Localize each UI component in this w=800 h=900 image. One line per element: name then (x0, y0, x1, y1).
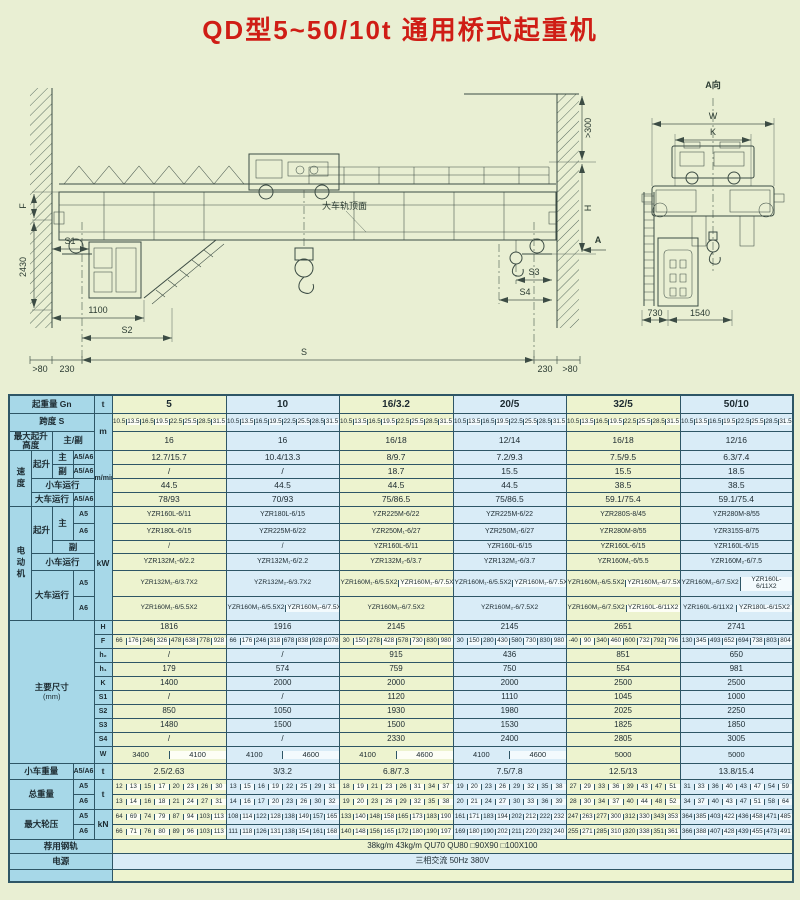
label-main: 主 (52, 451, 73, 465)
sub-value: 29 (396, 799, 410, 806)
label-a6: A6 (73, 597, 94, 621)
dim-values: 41004600 (339, 747, 453, 764)
sub-value: -40 (567, 638, 580, 645)
sub-value: 23 (367, 799, 381, 806)
sub-value: 5000 (681, 751, 793, 759)
value-cell: 18.5 (680, 465, 793, 479)
span-values: 10.513.516.519.522.525.528.531.5 (453, 413, 566, 431)
value-cell: 15.5 (566, 465, 680, 479)
sub-value: 31.5 (324, 419, 338, 426)
value-cell: 1480 (112, 719, 226, 733)
sub-value: 22 (282, 784, 296, 791)
dim-letter: S1 (94, 691, 112, 705)
sub-value: 66 (113, 638, 126, 645)
value-cell: / (112, 691, 226, 705)
sub-value: 90 (580, 638, 594, 645)
sub-value: 133 (340, 814, 353, 821)
motor-cell: YZR160M₂-6/7.5X2 (453, 597, 566, 621)
dim-values: 5000 (680, 747, 793, 764)
dims-unit: (mm) (10, 693, 94, 701)
row-lift-height: 最大起升高度 主/副 16 16 16/18 12/14 16/18 12/16 (9, 431, 793, 451)
value-cell: 78/93 (112, 493, 226, 507)
sub-value: YZR160M₁-6/5.5X2 (340, 580, 399, 587)
value-cell: 6.8/7.3 (339, 764, 453, 780)
a-view-title: A向 (705, 79, 721, 90)
sub-value: 40 (623, 799, 637, 806)
value-cell: 1916 (226, 621, 339, 635)
sub-value: 28.5 (651, 419, 665, 426)
sub-value: 491 (778, 829, 792, 836)
view-arrow-label: A (595, 235, 602, 245)
sub-value: 25.5 (750, 419, 764, 426)
dim-values: 66176246326478638778928 (112, 635, 226, 649)
dim-values: 34004100 (112, 747, 226, 764)
sub-value: 19.5 (381, 419, 395, 426)
sub-value: 285 (594, 829, 608, 836)
sub-value: 40 (708, 799, 722, 806)
sub-value: 122 (254, 814, 268, 821)
sub-value: 26 (381, 799, 395, 806)
dim-values: 30150280430580730830980 (453, 635, 566, 649)
sub-value: 14 (227, 799, 240, 806)
label-a5: A5 (73, 571, 94, 597)
unit-motor: kW (94, 507, 112, 621)
sub-value: 18 (154, 799, 168, 806)
row-dim-S3: S3 1480 1500 1500 1530 1825 1850 (9, 719, 793, 733)
sub-value: 140 (340, 829, 353, 836)
load-values: 140148156165172180190197 (339, 825, 453, 840)
sub-value: 31 (211, 799, 225, 806)
sub-value: 340 (594, 638, 608, 645)
row-total-weight-a5: 总重量 A5 t 1213151720232630 13151619222529… (9, 780, 793, 795)
value-cell: 1930 (339, 705, 453, 719)
sub-value: 10.5 (227, 419, 240, 426)
sub-value: 4100 (227, 751, 283, 759)
top-truss (64, 166, 244, 184)
dim-1540: 1540 (690, 308, 710, 318)
sub-value: YZR160M₂-6/7.5X2 (285, 605, 339, 612)
motor-cell: YZR132M₂-6/3.7 (339, 554, 453, 571)
motor-cell: YZR160M₁-6/5.5X2YZR160M₁-6/7.5X2 (453, 571, 566, 597)
sub-value: 79 (154, 814, 168, 821)
sub-value: 10.5 (454, 419, 467, 426)
sub-value: 345 (694, 638, 708, 645)
value-cell: 38.5 (680, 479, 793, 493)
empty-label-cell (9, 870, 112, 882)
sub-value: 838 (296, 638, 310, 645)
sub-value: 19 (268, 784, 282, 791)
unit-wheel-load: kN (94, 810, 112, 840)
sub-value: YZR160M₁-6/7.5X2 (512, 580, 566, 587)
sub-value: 69 (126, 814, 140, 821)
label-aux: 副 (52, 541, 94, 554)
sub-value: 131 (268, 829, 282, 836)
dim-letter: F (94, 635, 112, 649)
sub-value: 422 (722, 814, 736, 821)
end-truck-wheel (530, 239, 544, 253)
crane-wheel (653, 203, 667, 217)
motor-cell: YZR250M₁-6/27 (339, 524, 453, 541)
catalog-page: QD型5~50/10t 通用桥式起重机 (0, 0, 800, 900)
sub-value: 12 (113, 784, 126, 791)
sub-value: 40 (722, 784, 736, 791)
dim-S: S (301, 347, 307, 357)
sub-value: 140 (353, 814, 367, 821)
sub-value: 26 (495, 784, 509, 791)
sub-value: 26 (296, 799, 310, 806)
value-cell: / (112, 733, 226, 747)
weight-values: 2021242730333639 (453, 795, 566, 810)
operator-cab (89, 240, 224, 304)
sub-value: 66 (227, 638, 240, 645)
value-cell: 1045 (566, 691, 680, 705)
value-cell: 2651 (566, 621, 680, 635)
motor-cell: YZR160M₁-6/5.5X2YZR160M₂-6/7.5X2 (226, 597, 339, 621)
sub-value: 19.5 (154, 419, 168, 426)
value-cell: 850 (112, 705, 226, 719)
sub-value: 96 (183, 829, 197, 836)
bridge-girder (54, 166, 557, 254)
sub-value: 10.5 (340, 419, 353, 426)
sub-value: 38 (438, 799, 452, 806)
motor-cell: YZR160L-6/11 (112, 507, 226, 524)
sub-value: 28.5 (197, 419, 211, 426)
value-cell: 12.5/13 (566, 764, 680, 780)
sub-value: 20 (169, 784, 183, 791)
sub-value: 220 (523, 829, 537, 836)
weight-values: 3133364043475459 (680, 780, 793, 795)
sub-value: 246 (140, 638, 154, 645)
value-cell: 1816 (112, 621, 226, 635)
dim-values: 30150278428578730830980 (339, 635, 453, 649)
value-cell: / (112, 465, 226, 479)
row-wheel-load-a5: 最大轮压 A5 kN 646974798794103113 1081141221… (9, 810, 793, 825)
motor-cell: / (112, 541, 226, 554)
load-values: 161171183194202212222232 (453, 810, 566, 825)
sub-value: 180 (410, 829, 424, 836)
sub-value: YZR160M₂-6/7.5X2 (340, 605, 453, 612)
value-cell: 10 (226, 395, 339, 413)
sub-value: 13 (113, 799, 126, 806)
motor-cell: YZR160M₁-6/5.5X2 (112, 597, 226, 621)
sub-value: 183 (424, 814, 438, 821)
weight-values: 3437404347515864 (680, 795, 793, 810)
dim-letter: h₁ (94, 663, 112, 677)
value-cell: 1850 (680, 719, 793, 733)
sub-value: 21 (367, 784, 381, 791)
motor-cell: YZR225M-6/22 (339, 507, 453, 524)
sub-value: 202 (495, 829, 509, 836)
weight-values: 2830343740444852 (566, 795, 680, 810)
sub-value: 27 (567, 784, 580, 791)
load-values: 667176808996103113 (112, 825, 226, 840)
sub-value: YZR160M₂-6/7.5X2 (681, 577, 740, 591)
row-motor-bridge-a6: A6 YZR160M₁-6/5.5X2 YZR160M₁-6/5.5X2YZR1… (9, 597, 793, 621)
sub-value: YZR160M₁-6/5.5X2 (454, 580, 513, 587)
sub-value: 13.5 (353, 419, 367, 426)
dim-letter: K (94, 677, 112, 691)
label-trolley-weight: 小车重量 (9, 764, 73, 780)
sub-value: 600 (623, 638, 637, 645)
a-view-drawing: A向 W K (622, 74, 794, 384)
sub-value: 485 (778, 814, 792, 821)
sub-value: 30 (509, 799, 523, 806)
sub-value: 25.5 (183, 419, 197, 426)
sub-value: 32 (523, 784, 537, 791)
sub-value: 694 (736, 638, 750, 645)
dim-letter: h₂ (94, 649, 112, 663)
sub-value: 33 (694, 784, 708, 791)
sub-value: 4100 (454, 751, 510, 759)
sub-value: 3400 (113, 751, 169, 759)
sub-value: 23 (183, 784, 197, 791)
sub-value: 35 (537, 784, 551, 791)
dim-gt80-left: >80 (32, 364, 47, 374)
sub-value: 16 (140, 799, 154, 806)
sub-value: 29 (580, 784, 594, 791)
sub-value: 165 (381, 829, 395, 836)
sub-value: 24 (481, 799, 495, 806)
row-motor-bridge-a5: 大车运行 A5 YZR132M₂-6/3.7X2 YZR132M₂-6/3.7X… (9, 571, 793, 597)
sub-value: 194 (495, 814, 509, 821)
dim-gt300: >300 (583, 118, 593, 138)
sub-value: 34 (594, 799, 608, 806)
sub-value: 13 (227, 784, 240, 791)
value-cell: / (226, 733, 339, 747)
span-values: 10.513.516.519.522.525.528.531.5 (339, 413, 453, 431)
value-cell: 13.8/15.4 (680, 764, 793, 780)
dim-values: 41004600 (453, 747, 566, 764)
sub-value: 30 (454, 638, 467, 645)
value-cell: 2400 (453, 733, 566, 747)
value-cell: 2000 (339, 677, 453, 691)
sub-value: 165 (396, 814, 410, 821)
sub-value: 29 (509, 784, 523, 791)
sub-value: 10.5 (113, 419, 126, 426)
sub-value: 1078 (324, 638, 339, 645)
sub-value: YZR180L-6/15X2 (736, 605, 792, 612)
crane-wheel (759, 203, 773, 217)
sub-value: 778 (197, 638, 211, 645)
label-main-aux: 主/副 (52, 431, 94, 451)
sub-value: 460 (608, 638, 622, 645)
sub-value: 34 (424, 784, 438, 791)
sub-value: 4600 (282, 751, 339, 759)
sub-value: 190 (438, 814, 452, 821)
value-cell: 759 (339, 663, 453, 677)
label-a6: A6 (73, 825, 94, 840)
label-a5: A5 (73, 507, 94, 524)
value-cell: 38.5 (566, 479, 680, 493)
load-values: 247263277300312330343353 (566, 810, 680, 825)
sub-value: 22.5 (509, 419, 523, 426)
value-cell: / (226, 465, 339, 479)
sub-value: 678 (282, 638, 296, 645)
sub-value: 458 (750, 814, 764, 821)
sub-value: 16.5 (367, 419, 381, 426)
buffer (774, 194, 784, 202)
value-cell: 5 (112, 395, 226, 413)
dim-values: -4090340460600732792796 (566, 635, 680, 649)
sub-value: 47 (750, 784, 764, 791)
value-cell: 179 (112, 663, 226, 677)
sub-value: 27 (197, 799, 211, 806)
motor-cell: YZR315S-8/75 (680, 524, 793, 541)
unit-speed: m/min (94, 451, 112, 507)
row-empty (9, 870, 793, 882)
sub-value: 16.5 (708, 419, 722, 426)
sub-value: 796 (665, 638, 679, 645)
value-cell: 59.1/75.4 (680, 493, 793, 507)
sub-value: 263 (580, 814, 594, 821)
sub-value: 26 (396, 784, 410, 791)
motor-cell: YZR160M₂-6/7.5 (680, 554, 793, 571)
row-dim-W: W 34004100 41004600 41004600 41004600 50… (9, 747, 793, 764)
value-cell: 2330 (339, 733, 453, 747)
motor-cell: YZR180L-6/15 (226, 507, 339, 524)
sub-value: 10.5 (681, 419, 694, 426)
sub-value: 16 (254, 784, 268, 791)
dim-S1: S1 (64, 236, 75, 246)
sub-value: 20 (467, 784, 481, 791)
load-values: 366388407428439455473491 (680, 825, 793, 840)
sub-value: 4100 (169, 751, 226, 759)
sub-value: YZR160L-6/11X2 (681, 605, 736, 612)
sub-value: 39 (551, 799, 565, 806)
motor-cell: YZR160L-6/15 (453, 541, 566, 554)
sub-value: 52 (665, 799, 679, 806)
sub-value: 13.5 (580, 419, 594, 426)
motor-cell: YZR160L-6/15 (566, 541, 680, 554)
sub-value: 19.5 (608, 419, 622, 426)
row-motor-main-a6: A6 YZR180L-6/15 YZR225M-6/22 YZR250M₁-6/… (9, 524, 793, 541)
sub-value: 578 (396, 638, 410, 645)
motor-cell: YZR280M-8/55 (566, 524, 680, 541)
sub-value: 652 (722, 638, 736, 645)
sub-value: 19 (340, 799, 353, 806)
value-cell: 7.5/9.5 (566, 451, 680, 465)
motor-cell: YZR225M-6/22 (453, 507, 566, 524)
sub-value: 19.5 (722, 419, 736, 426)
value-cell: / (226, 691, 339, 705)
dim-F: F (18, 203, 28, 209)
sub-value: 28.5 (537, 419, 551, 426)
sub-value: 15 (140, 784, 154, 791)
sub-value: 17 (154, 784, 168, 791)
motor-cell: YZR280S-8/45 (566, 507, 680, 524)
dim-2430: 2430 (18, 257, 28, 277)
sub-value: 980 (551, 638, 565, 645)
sub-value: 23 (381, 784, 395, 791)
a-view-hook (707, 232, 720, 264)
sub-value: 31 (681, 784, 694, 791)
sub-value: 247 (567, 814, 580, 821)
sub-value: 64 (113, 814, 126, 821)
value-cell: / (226, 649, 339, 663)
sub-value: YZR160L-6/11X2 (740, 577, 792, 591)
sub-value: 36 (708, 784, 722, 791)
sub-value: 16 (240, 799, 254, 806)
sub-value: 278 (367, 638, 381, 645)
row-motor-main-a5: 电动机 起升 主 A5 kW YZR160L-6/11 YZR180L-6/15… (9, 507, 793, 524)
value-cell: 70/93 (226, 493, 339, 507)
sub-value: 148 (353, 829, 367, 836)
sub-value: 31.5 (551, 419, 565, 426)
sub-value: 87 (169, 814, 183, 821)
dimensions: F 2430 S1 1100 S2 S >80 230 230 >80 >300 (18, 96, 606, 374)
sub-value: 13.5 (126, 419, 140, 426)
dim-letter: S2 (94, 705, 112, 719)
sub-value: 34 (681, 799, 694, 806)
sub-value: 74 (140, 814, 154, 821)
sub-value: 54 (764, 784, 778, 791)
sub-value: 173 (410, 814, 424, 821)
sub-value: 16.5 (140, 419, 154, 426)
sub-value: YZR132M₂-6/3.7X2 (227, 580, 339, 587)
row-speed-bridge: 大车运行 A5/A6 78/93 70/93 75/86.5 75/86.5 5… (9, 493, 793, 507)
sub-value: 37 (608, 799, 622, 806)
sub-value: 792 (651, 638, 665, 645)
sub-value: 439 (736, 829, 750, 836)
sub-value: 172 (396, 829, 410, 836)
sub-value: 21 (467, 799, 481, 806)
value-cell: 44.5 (453, 479, 566, 493)
sub-value: 103 (197, 814, 211, 821)
sub-value: YZR160M₂-6/7.5X2 (567, 605, 626, 612)
sub-value: 338 (637, 829, 651, 836)
sub-value: 33 (523, 799, 537, 806)
value-cell: 32/5 (566, 395, 680, 413)
sub-value: 22.5 (736, 419, 750, 426)
sub-value: YZR160M₁-6/5.5X2 (227, 605, 286, 612)
sub-value: 455 (750, 829, 764, 836)
sub-value: 730 (410, 638, 424, 645)
sub-value: 36 (608, 784, 622, 791)
label-speed-group: 速度 (9, 451, 31, 507)
sub-value: 403 (708, 814, 722, 821)
dim-letter: S4 (94, 733, 112, 747)
sub-value: 103 (197, 829, 211, 836)
sub-value: 830 (537, 638, 551, 645)
value-cell: 574 (226, 663, 339, 677)
value-cell: 75/86.5 (453, 493, 566, 507)
sub-value: 407 (708, 829, 722, 836)
sub-value: 157 (310, 814, 324, 821)
motor-cell: YZR160L-6/15 (680, 541, 793, 554)
sub-value: 25.5 (523, 419, 537, 426)
value-cell: 12/14 (453, 431, 566, 451)
row-trolley-weight: 小车重量 A5/A6 t 2.5/2.63 3/3.2 6.8/7.3 7.5/… (9, 764, 793, 780)
label-a5a6: A5/A6 (73, 764, 94, 780)
weight-values: 1920232629323538 (339, 795, 453, 810)
sub-value: 5000 (567, 751, 680, 759)
sub-value: 130 (681, 638, 694, 645)
sub-value: 20 (454, 799, 467, 806)
sub-value: 31.5 (665, 419, 679, 426)
sub-value: 171 (467, 814, 481, 821)
sub-value: 22.5 (282, 419, 296, 426)
sub-value: 128 (268, 814, 282, 821)
label-bridge-travel: 大车运行 (31, 571, 73, 621)
sub-value: 197 (438, 829, 452, 836)
label-hoist: 起升 (31, 451, 52, 479)
sub-value: YZR160L-6/11X2 (626, 605, 680, 612)
dim-K: K (710, 127, 716, 137)
power-value: 三相交流 50Hz 380V (112, 854, 793, 870)
row-dim-S4: S4 / / 2330 2400 2805 3005 (9, 733, 793, 747)
value-cell: 2000 (226, 677, 339, 691)
sub-value: 19.5 (268, 419, 282, 426)
